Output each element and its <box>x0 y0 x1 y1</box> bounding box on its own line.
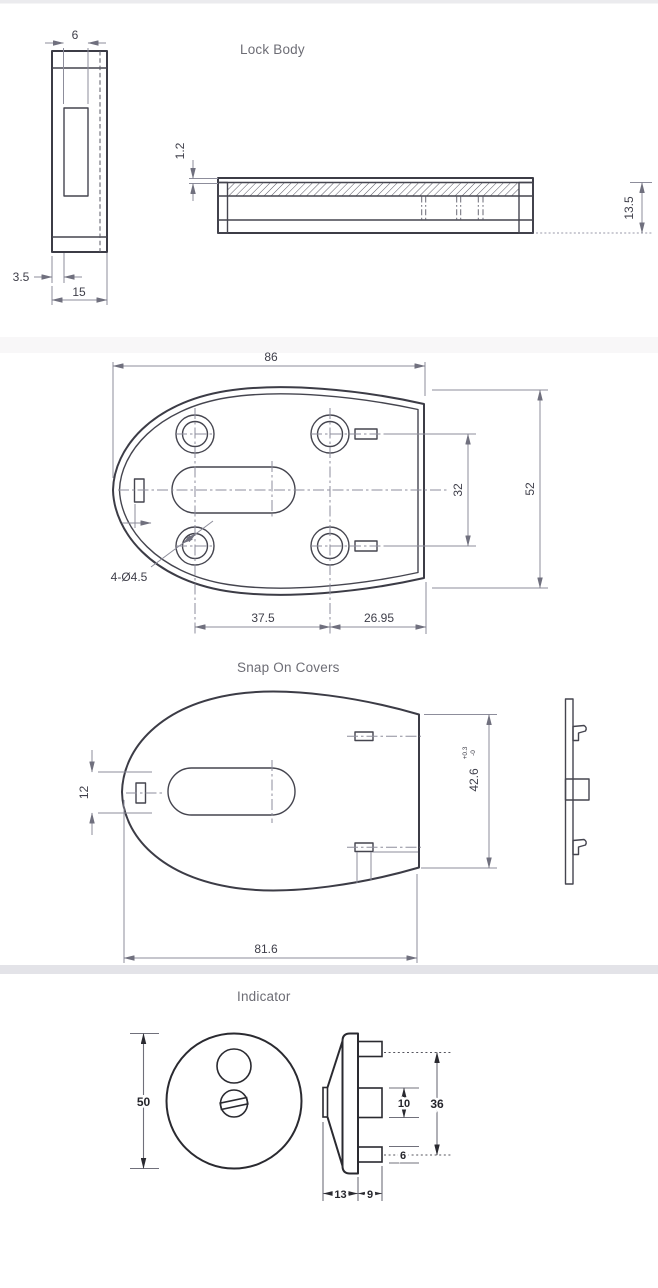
lock-body-outline <box>52 51 107 252</box>
mounting-tab <box>358 1147 382 1162</box>
dim-plate-thickness-label: 1.2 <box>173 142 187 159</box>
scan-band <box>0 965 658 974</box>
dim-hole-spacing-horizontal: 37.5 26.95 <box>195 582 426 634</box>
dim-cover-height-tol-upper: +0.3 <box>462 746 469 759</box>
snap-on-covers-title: Snap On Covers <box>237 660 340 675</box>
lock-body-section-view: 1.2 13.5 <box>173 142 652 233</box>
dim-cone-depth-label: 13 <box>334 1189 346 1201</box>
dim-cover-height: 42.6 +0.3 -0 <box>421 715 497 869</box>
dim-overall-width: 86 <box>113 350 425 478</box>
dim-cover-height-tol-lower: -0 <box>470 750 477 756</box>
hatched-top-plate <box>228 183 520 197</box>
dim-tab-depth-label: 9 <box>367 1189 373 1201</box>
boss-block <box>566 779 590 800</box>
cover-outline <box>122 692 419 891</box>
dim-slot-width-label: 6 <box>72 28 79 42</box>
dim-body-width: 15 <box>52 253 107 305</box>
dim-edge-offset: 3.5 <box>13 253 82 284</box>
snap-hook <box>573 726 586 741</box>
snap-cover-front-view: 12 42.6 +0.3 -0 81.6 <box>77 692 497 963</box>
dim-edge-offset-label: 3.5 <box>13 270 30 284</box>
mounting-tab <box>358 1088 382 1118</box>
hatched-end-cap <box>519 183 533 234</box>
dim-slot-width: 6 <box>45 28 106 104</box>
snap-hook <box>573 840 586 855</box>
dim-rose-diameter-label: 50 <box>137 1095 151 1109</box>
dim-cover-height-label: 42.6 <box>467 768 481 792</box>
scan-band <box>0 0 658 4</box>
release-slot <box>220 1098 248 1110</box>
dim-overall-height-label: 52 <box>523 482 537 496</box>
dim-tab-span: 36 <box>430 1053 444 1156</box>
indicator-front-view: 50 <box>130 1034 302 1169</box>
lock-body-title: Lock Body <box>240 42 305 57</box>
spindle-slot <box>168 768 295 815</box>
dim-plate-thickness: 1.2 <box>173 142 218 201</box>
base-plate-view: 86 32 52 37.5 26.95 <box>111 350 548 634</box>
drawing-canvas: 6 3.5 15 Lock Body <box>0 0 658 1288</box>
lock-body-slot <box>64 108 88 196</box>
dim-rose-diameter: 50 <box>130 1034 159 1169</box>
snap-cover-profile-view <box>566 699 590 884</box>
mounting-tab <box>358 1042 382 1057</box>
dim-bottom-tab-height-label: 6 <box>400 1150 406 1162</box>
plate-outer-outline <box>113 387 424 595</box>
dim-cover-width: 81.6 <box>124 800 417 963</box>
dim-edge-distance-label: 26.95 <box>364 611 394 625</box>
scan-band <box>0 337 658 353</box>
holes-callout-label: 4-Ø4.5 <box>111 570 148 584</box>
cone-nose <box>323 1088 328 1118</box>
indicator-window <box>217 1049 251 1083</box>
indicator-title: Indicator <box>237 989 291 1004</box>
left-slot-reference <box>122 504 151 528</box>
technical-drawing-page: 6 3.5 15 Lock Body <box>0 0 658 1288</box>
cone-edge <box>328 1041 343 1088</box>
cone-edge <box>328 1117 343 1166</box>
dim-tab-span-label: 36 <box>430 1097 444 1111</box>
dim-body-width-label: 15 <box>72 285 86 299</box>
dim-cover-width-label: 81.6 <box>254 942 278 956</box>
dim-overall-height: 52 <box>432 390 548 588</box>
dim-overall-width-label: 86 <box>264 350 278 364</box>
indicator-side-view: 36 10 6 13 9 <box>323 1034 452 1202</box>
dim-slot-height-label: 12 <box>77 786 91 800</box>
cover-profile-strip <box>566 699 574 884</box>
dim-middle-tab-height: 10 <box>389 1088 419 1118</box>
indicator-body <box>343 1034 359 1174</box>
dim-hole-spacing-horizontal-label: 37.5 <box>251 611 275 625</box>
dim-hole-spacing-vertical-label: 32 <box>451 483 465 497</box>
dim-body-height: 13.5 <box>536 183 652 234</box>
plate-inner-outline <box>120 394 419 588</box>
hatched-end-cap <box>218 183 228 234</box>
dim-body-height-label: 13.5 <box>622 196 636 220</box>
lock-body-front-view: 6 3.5 15 <box>13 28 107 305</box>
emergency-release <box>221 1090 248 1117</box>
dim-middle-tab-height-label: 10 <box>398 1098 410 1110</box>
